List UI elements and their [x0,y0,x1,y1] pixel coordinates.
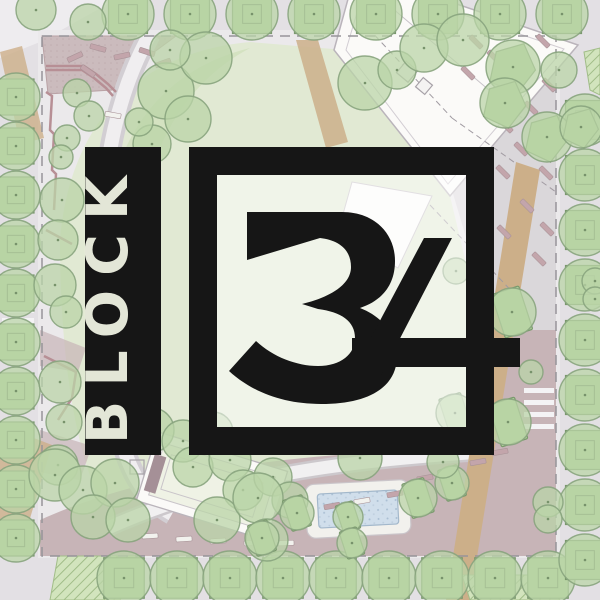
block34-logo-graphic: 34 BLOCK [0,0,600,600]
numeral-4-crossbar [352,338,520,367]
block34-logo: BLOCK [75,147,520,455]
site-plan-illustration: BLOCK [0,0,600,600]
logo-block-label: BLOCK [75,162,141,444]
